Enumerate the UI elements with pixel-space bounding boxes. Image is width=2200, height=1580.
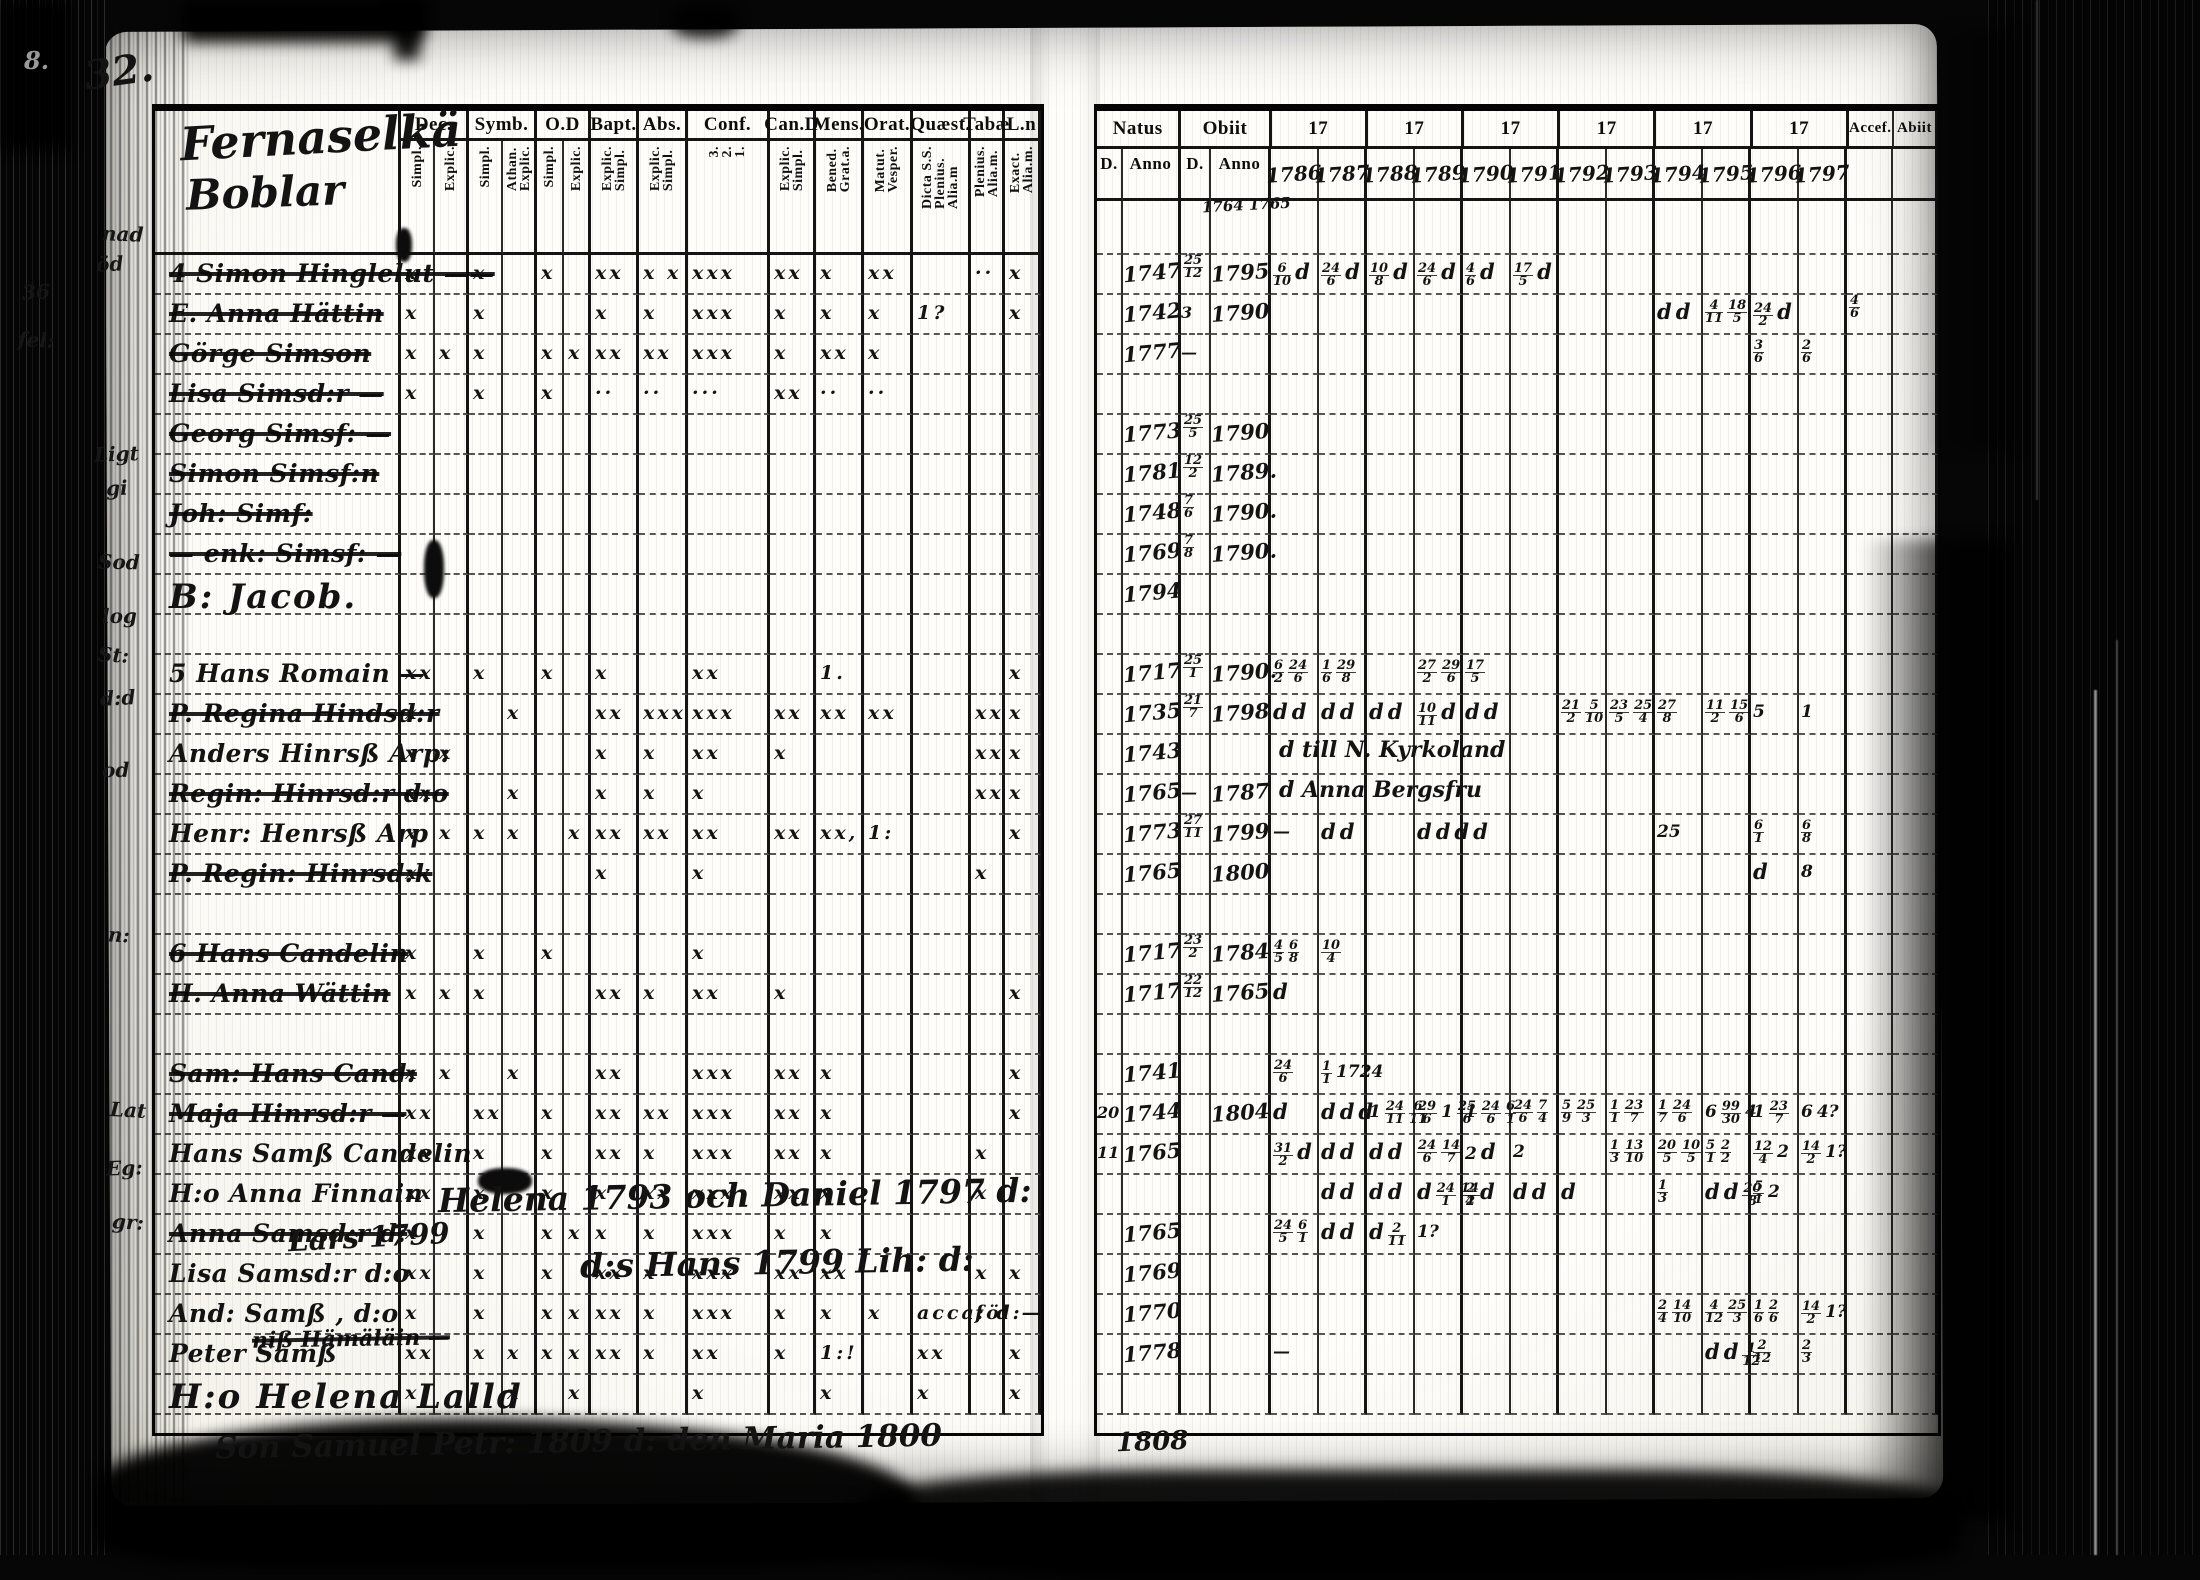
year-entry-cell [1751, 535, 1799, 575]
year-entry-cell [1463, 1335, 1511, 1375]
column-label: Can.D [764, 114, 819, 136]
attendance-marks: x [1005, 782, 1023, 804]
year-entry-cell: 108d [1367, 255, 1415, 295]
obiit-day-cell [1181, 375, 1211, 415]
attendance-marks: xx [639, 1102, 672, 1124]
year-entry-cell [1607, 615, 1655, 655]
accessit-cell [1847, 375, 1893, 415]
natus-year: 1778 [1122, 1333, 1180, 1374]
spacer-cell [1559, 201, 1607, 255]
register-row: 111765312ddddd2461472d213131020510551221… [1097, 1135, 1938, 1175]
mark-cell [1005, 1015, 1041, 1055]
natus-year-cell: 1773 [1123, 815, 1181, 855]
date-fraction: 510 [1585, 700, 1603, 725]
mark-cell: x [816, 1375, 864, 1415]
entry-text: — [1273, 822, 1290, 842]
year-entry-cell: dd [1319, 815, 1367, 855]
obiit-day-cell [1181, 855, 1211, 895]
mark-cell [469, 575, 503, 615]
year-entry-cell [1751, 655, 1799, 695]
mark-cell [770, 535, 816, 575]
year-entry-cell: 2 [1511, 1135, 1559, 1175]
mark-cell [503, 1095, 537, 1135]
person-name-cell: Regin: Hinrsd:r d:o [155, 775, 401, 815]
year-entry-cell [1655, 1215, 1703, 1255]
year-entry-cell [1367, 295, 1415, 335]
mark-cell: x [401, 295, 435, 335]
mark-cell: xx [913, 1335, 971, 1375]
year-entry-cell [1415, 1335, 1463, 1375]
date-fraction: 122 [1183, 455, 1203, 480]
mark-cell [537, 415, 564, 455]
mark-cell [591, 415, 639, 455]
year-entry-cell [1511, 775, 1559, 815]
year-entry-cell [1703, 615, 1751, 655]
entry-text: 1 [1441, 1102, 1453, 1122]
person-name-cell: Simon Simsf:n [155, 455, 401, 495]
register-row: Görge Simsonxxxxxxxxxxxxxxxx [155, 335, 1041, 375]
mark-cell: xx [770, 695, 816, 735]
mark-cell: xx [401, 655, 435, 695]
mark-cell [435, 455, 469, 495]
film-blotch [182, 0, 426, 42]
year-entry-cell: 1011d [1415, 695, 1463, 735]
mark-cell [537, 815, 564, 855]
year-entry-cell [1463, 1295, 1511, 1335]
obiit-year-cell: 1804 [1211, 1095, 1271, 1135]
communion-d-mark: d [1340, 1099, 1355, 1124]
year-entry-cell [1463, 855, 1511, 895]
natus-year: 1747 [1122, 253, 1180, 294]
person-name: Lisa Simsd:r — [155, 379, 384, 408]
mark-cell: x [503, 775, 537, 815]
natus-day-cell [1097, 495, 1123, 535]
mark-cell: xxx [688, 255, 770, 295]
year-entry-cell [1655, 495, 1703, 535]
mark-cell [913, 1095, 971, 1135]
year-entry-cell [1607, 1055, 1655, 1095]
margin-scribble: Eg: [106, 1155, 143, 1180]
person-name: B: Jacob. [155, 577, 357, 617]
mark-cell: ·· [591, 375, 639, 415]
mark-cell: xx [770, 375, 816, 415]
attendance-marks: x [503, 782, 521, 804]
year-entry-cell [1607, 975, 1655, 1015]
mark-cell: x [401, 975, 435, 1015]
year-entry-cell [1415, 975, 1463, 1015]
attendance-marks: x [401, 942, 419, 964]
subcolumn-natus-day: D. [1097, 149, 1123, 201]
year-entry-cell [1655, 895, 1703, 935]
attendance-marks: xx [688, 982, 721, 1004]
person-name: P. Regin: Hinrsd:k [155, 859, 432, 888]
attendance-marks: xxx [688, 1142, 735, 1164]
attendance-marks: xx [639, 342, 672, 364]
column-label: Abs. [643, 114, 681, 136]
register-row: — enk: Simsf: — [155, 535, 1041, 575]
mark-cell: x [816, 295, 864, 335]
mark-cell: xxx [639, 695, 688, 735]
natus-year-cell: 1735 [1123, 695, 1181, 735]
column-head-orat: Orat. [864, 111, 913, 141]
year-entry-cell [1751, 895, 1799, 935]
attendance-marks: x [688, 1382, 706, 1404]
year-entry-cell [1463, 295, 1511, 335]
attendance-marks: x [816, 302, 834, 324]
film-edge-left [0, 0, 106, 1555]
year-entry-cell: 278 [1655, 695, 1703, 735]
register-row [155, 1015, 1041, 1055]
register-row: 2017441804dddd12411611296125612466124674… [1097, 1095, 1938, 1135]
year-entry-cell [1319, 975, 1367, 1015]
year-entry-cell [1751, 1255, 1799, 1295]
column-label: Mens. [813, 114, 865, 136]
communion-d-mark: d [1393, 259, 1408, 284]
communion-d-mark: d [1388, 699, 1403, 724]
year-entry-cell [1367, 375, 1415, 415]
mark-cell [971, 495, 1005, 535]
year-entry-cell: 23 [1799, 1335, 1847, 1375]
year-entry-cell [1271, 415, 1319, 455]
attendance-marks: xx [591, 262, 624, 284]
mark-cell [564, 775, 591, 815]
mark-cell [971, 415, 1005, 455]
year-entry-cell [1655, 575, 1703, 615]
year-entry-cell [1367, 335, 1415, 375]
date-fraction: 278 [1657, 700, 1677, 725]
year-entry-cell [1463, 535, 1511, 575]
obiit-day-cell [1181, 1335, 1211, 1375]
obiit-day-cell [1181, 1215, 1211, 1255]
attendance-marks: x [639, 782, 657, 804]
year-entry-cell [1799, 455, 1847, 495]
year-entry-cell [1367, 1295, 1415, 1335]
ink-blot [396, 228, 412, 262]
year-entry-cell [1415, 895, 1463, 935]
margin-scribble: log [102, 604, 137, 629]
mark-cell: xx [971, 775, 1005, 815]
year-entry-cell [1415, 1255, 1463, 1295]
mark-cell [864, 575, 913, 615]
natus-day-cell [1097, 535, 1123, 575]
year-entry-cell [1511, 575, 1559, 615]
mark-cell: x [770, 335, 816, 375]
mark-cell: x [639, 1295, 688, 1335]
obiit-year-cell [1211, 1215, 1271, 1255]
year-column-1787: 1787 [1319, 149, 1367, 201]
mark-cell: xx, [816, 815, 864, 855]
obiit-day-cell: 2212 [1181, 975, 1211, 1015]
mark-cell [564, 495, 591, 535]
person-name-cell: P. Regina Hindsd:r [155, 695, 401, 735]
mark-cell: x [435, 975, 469, 1015]
year-entry-cell [1607, 495, 1655, 535]
mark-cell [971, 975, 1005, 1015]
date-fraction: 235 [1609, 700, 1629, 725]
year-entry-cell [1607, 255, 1655, 295]
communion-d-mark: d [1705, 1339, 1720, 1364]
attendance-marks: xx [770, 1142, 803, 1164]
obiit-year: 1800 [1210, 853, 1269, 893]
attendance-marks: x [469, 1302, 487, 1324]
column-head-cand: Can.D [770, 111, 816, 141]
mark-cell [435, 1015, 469, 1055]
natus-year: 1741 [1122, 1053, 1180, 1094]
year-entry-cell: d241144 [1415, 1175, 1463, 1215]
mark-cell: xxx [688, 1135, 770, 1175]
year-entry-cell [1415, 375, 1463, 415]
accessit-cell [1847, 335, 1893, 375]
natus-year-cell [1123, 1175, 1181, 1215]
date-fraction: 246 [1288, 660, 1308, 685]
subcolumn-head: Explic. Simpl. [770, 141, 816, 255]
mark-cell [591, 535, 639, 575]
attendance-marks: xx [816, 702, 849, 724]
mark-cell [770, 935, 816, 975]
year-entry-cell: 512 [1751, 1175, 1799, 1215]
year-entry-cell [1607, 1335, 1655, 1375]
attendance-marks: xx [401, 1142, 434, 1164]
natus-day-cell [1097, 735, 1123, 775]
natus-day-cell [1097, 615, 1123, 655]
year-entry-cell [1559, 1255, 1607, 1295]
natus-day-cell [1097, 415, 1123, 455]
communion-d-mark: d [1369, 1219, 1384, 1244]
year-entry-cell [1271, 1375, 1319, 1415]
mark-cell [639, 415, 688, 455]
year-entry-cell [1319, 295, 1367, 335]
attendance-marks: x [1005, 822, 1023, 844]
year-entry-cell: 24674 [1511, 1095, 1559, 1135]
year-entry-cell [1607, 935, 1655, 975]
date-fraction: 185 [1727, 300, 1747, 325]
attendance-marks: x [469, 1142, 487, 1164]
obiit-year: 1790. [1210, 533, 1269, 573]
date-fraction: 237 [1769, 1101, 1789, 1126]
mark-cell: x [971, 1255, 1005, 1295]
attendance-marks: x [639, 982, 657, 1004]
obiit-day-cell: — [1181, 775, 1211, 815]
mark-cell [503, 495, 537, 535]
mark-cell [639, 495, 688, 535]
mark-cell [435, 1375, 469, 1415]
attendance-marks: x [639, 1302, 657, 1324]
mark-cell: x [401, 1375, 435, 1415]
mark-cell [503, 615, 537, 655]
date-fraction: 253 [1576, 1100, 1596, 1125]
mark-cell: ··· [688, 375, 770, 415]
date-fraction: 312 [1273, 1143, 1293, 1168]
mark-cell [816, 855, 864, 895]
person-name: Henr: Henrsß Arp [155, 819, 429, 848]
mark-cell [401, 415, 435, 455]
mark-cell [913, 1015, 971, 1055]
register-row: Simon Simsf:n [155, 455, 1041, 495]
year-entry-cell [1511, 375, 1559, 415]
mark-cell: x [688, 855, 770, 895]
natus-year: 1769 [1122, 1253, 1180, 1294]
register-row: 174231790dd411185242d46 [1097, 295, 1938, 335]
mark-cell: x [770, 1295, 816, 1335]
mark-cell: x [639, 295, 688, 335]
date-fraction: 272 [1417, 660, 1437, 685]
column-head-bapt: Bapt. [591, 111, 639, 141]
subcolumn-label: Athan. Explic. [506, 146, 532, 191]
year-entry-cell [1799, 1055, 1847, 1095]
year-entry-cell [1607, 1015, 1655, 1055]
date-fraction: 253 [1727, 1300, 1747, 1325]
natus-year-cell [1123, 1015, 1181, 1055]
mark-cell [864, 1055, 913, 1095]
subcolumn-label: Simpl. [543, 146, 556, 188]
year-entry-cell [1655, 455, 1703, 495]
mark-cell [435, 415, 469, 455]
attendance-marks: x [591, 1222, 609, 1244]
attendance-marks: x [591, 662, 609, 684]
year-entry-cell [1799, 1215, 1847, 1255]
margin-scribble: gr: [111, 1209, 144, 1235]
mark-cell [913, 655, 971, 695]
register-row: 17811221789. [1097, 455, 1938, 495]
date-fraction: 26 [1801, 340, 1812, 365]
attendance-marks: x [435, 1062, 453, 1084]
microfilm-scan: Fernaselkä Boblar Dec.Symb.O.DBapt.Abs.C… [0, 0, 2200, 1555]
spacer-cell [1655, 201, 1703, 255]
attendance-marks: x [469, 982, 487, 1004]
year-entry-cell [1511, 335, 1559, 375]
year-entry-cell [1559, 895, 1607, 935]
mark-cell [503, 1255, 537, 1295]
date-fraction: 16 [1753, 1300, 1764, 1325]
attendance-marks: xx [469, 1102, 502, 1124]
margin-scribble: od [102, 758, 130, 782]
attendance-marks: xx [591, 982, 624, 1004]
year-entry-cell [1271, 495, 1319, 535]
natus-year-cell: 1794 [1123, 575, 1181, 615]
mark-cell: x [639, 1335, 688, 1375]
year-entry-cell [1271, 535, 1319, 575]
attendance-marks: x [864, 342, 882, 364]
year-entry-cell [1511, 1335, 1559, 1375]
subcolumn-head: Explic. Simpl. [639, 141, 688, 255]
date-fraction: 254 [1633, 700, 1653, 725]
year-entry-cell [1559, 255, 1607, 295]
natus-year-cell: 1765 [1123, 1135, 1181, 1175]
register-row [155, 615, 1041, 655]
communion-d-mark: d [1321, 819, 1336, 844]
attendance-marks: x [591, 302, 609, 324]
column-label: Quæst. [910, 114, 971, 136]
year-entry-cell [1367, 1055, 1415, 1095]
mark-cell [503, 575, 537, 615]
communion-d-mark: d [1676, 299, 1691, 324]
mark-cell: x [469, 375, 503, 415]
year-entry-cell: dd [1367, 1175, 1415, 1215]
year-entry-cell: 699304 [1703, 1095, 1751, 1135]
person-name: 5 Hans Romain — [155, 659, 425, 688]
subcolumn-head: Explic. [435, 141, 469, 255]
mark-cell: x [1005, 1375, 1041, 1415]
mark-cell [401, 615, 435, 655]
mark-cell [864, 1015, 913, 1055]
year-entry-cell [1607, 535, 1655, 575]
mark-cell: x [1005, 1335, 1041, 1375]
film-blotch [0, 0, 70, 150]
year-entry-cell: 61 [1751, 815, 1799, 855]
date-fraction: 175 [1465, 660, 1485, 685]
attendance-marks: x [537, 1222, 555, 1244]
year-entry-cell [1799, 1375, 1847, 1415]
natus-year: 1769 [1122, 533, 1180, 574]
natus-year-cell: 1742 [1123, 295, 1181, 335]
year-entry-cell: d [1271, 975, 1319, 1015]
subcolumn-label: 3. 2. 1. [708, 146, 747, 158]
date-fraction: 16 [1321, 660, 1332, 685]
mark-cell: x [1005, 735, 1041, 775]
register-row: 1769781790. [1097, 535, 1938, 575]
obiit-day-cell [1181, 1175, 1211, 1215]
mark-cell: x [503, 1055, 537, 1095]
year-entry-cell: 1242 [1751, 1135, 1799, 1175]
mark-cell [770, 615, 816, 655]
mark-cell: x [770, 1335, 816, 1375]
year-entry-cell [1655, 375, 1703, 415]
mark-cell [564, 895, 591, 935]
register-row: Maja Hinrsd:r —xxxxxxxxxxxxxxxx [155, 1095, 1041, 1135]
subcolumn-label: Bened. Grat.a. [826, 146, 852, 192]
year-entry-cell: — [1271, 1335, 1319, 1375]
person-name-cell [155, 895, 401, 935]
mark-cell [469, 455, 503, 495]
mark-cell: xx [591, 1135, 639, 1175]
year-entry-cell [1511, 815, 1559, 855]
year-entry-cell: — [1271, 815, 1319, 855]
year-entry-cell: 175d [1511, 255, 1559, 295]
mark-cell [913, 975, 971, 1015]
attendance-marks: x [537, 662, 555, 684]
date-fraction: 246 [1417, 1140, 1437, 1165]
mark-cell [639, 455, 688, 495]
year-entry-cell [1703, 335, 1751, 375]
year-entry-cell [1703, 655, 1751, 695]
register-row: 1765—1787d Anna Bergsfru [1097, 775, 1938, 815]
mark-cell: acca: d: [913, 1295, 971, 1335]
mark-cell [913, 495, 971, 535]
person-name-cell: P. Regin: Hinrsd:k [155, 855, 401, 895]
register-row: ddddd24114422dddd13dd208512 [1097, 1175, 1938, 1215]
date-fraction: 51 [1705, 1140, 1716, 1165]
attendance-marks: xx [816, 342, 849, 364]
date-fraction: 212 [1561, 700, 1581, 725]
natus-year: 1744 [1122, 1093, 1180, 1134]
mark-cell [770, 775, 816, 815]
mark-cell [913, 415, 971, 455]
attendance-marks: xxx [639, 702, 686, 724]
mark-cell [688, 895, 770, 935]
date-fraction: 1011 [1417, 703, 1437, 728]
date-fraction: 11 [1609, 1100, 1620, 1125]
year-entry-cell [1511, 1375, 1559, 1415]
natus-year: 1765 [1122, 773, 1180, 814]
natus-day-cell [1097, 935, 1123, 975]
column-label: 17 [1404, 118, 1424, 140]
column-head-year-pair: 17 [1560, 111, 1656, 149]
date-fraction: 246 [1417, 263, 1437, 288]
ink-blot [424, 540, 444, 598]
communion-d-mark: d [1481, 1139, 1496, 1164]
year-entry-cell [1271, 1015, 1319, 1055]
year-entry-cell [1271, 1255, 1319, 1295]
